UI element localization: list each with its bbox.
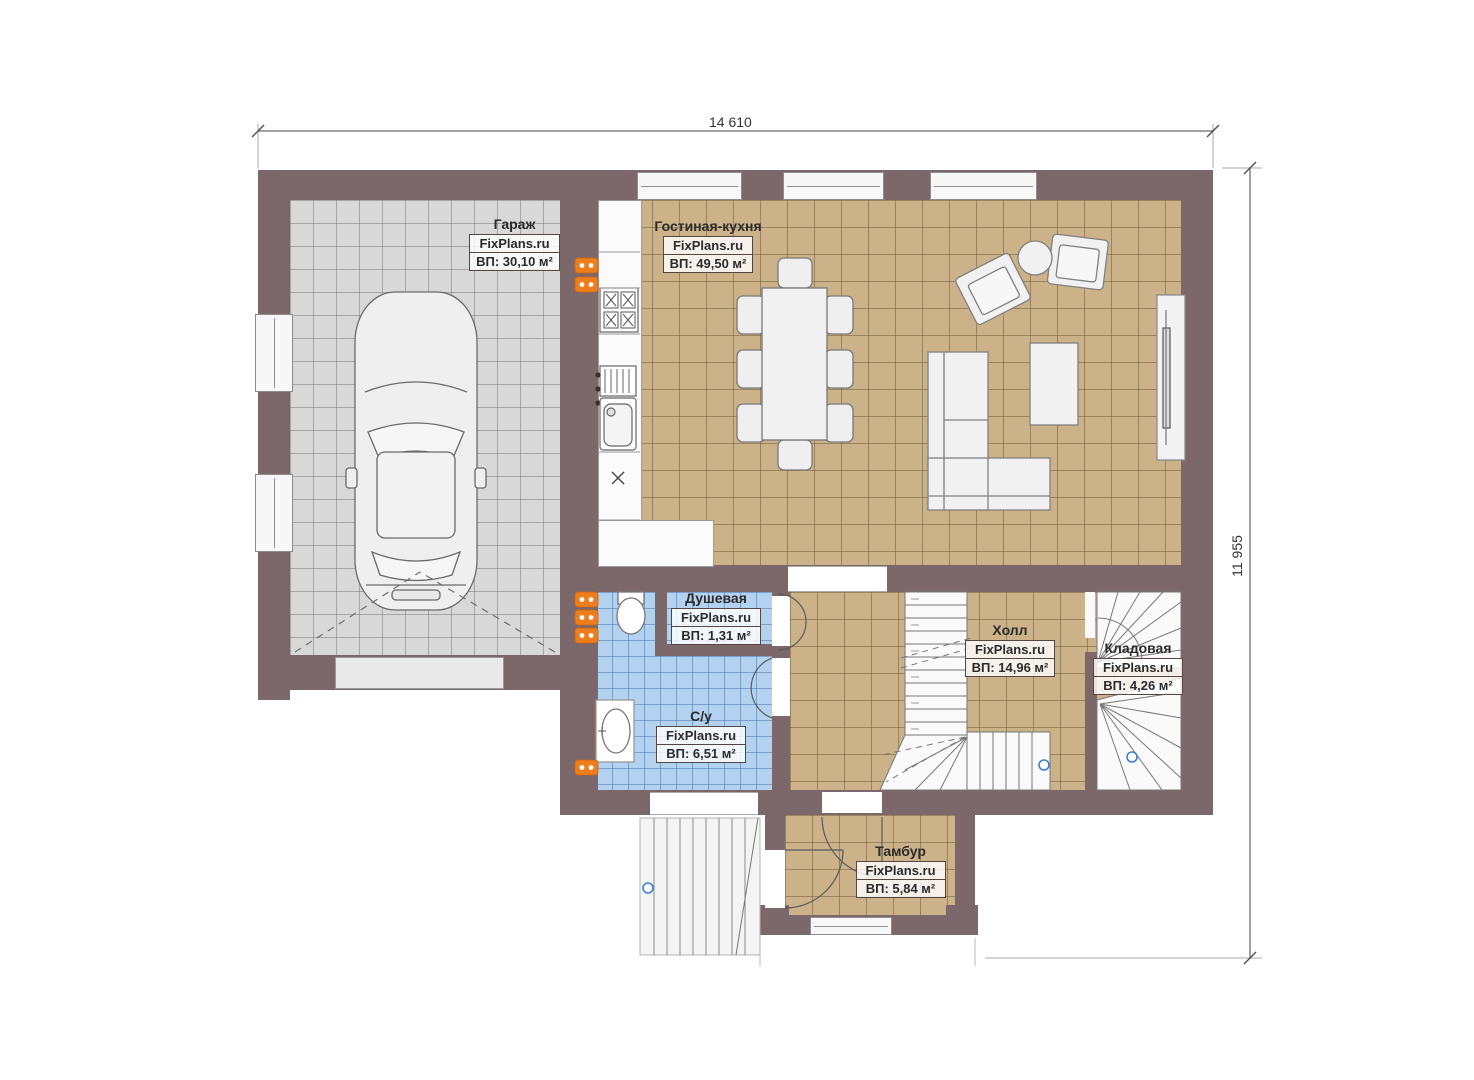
watermark: FixPlans.ru: [672, 609, 760, 627]
living-window-1: [637, 172, 742, 200]
room-area: ВП: 5,84 м²: [857, 880, 945, 897]
entrance-stairs: [640, 818, 760, 955]
vestibule-pilaster-left: [757, 905, 789, 935]
watermark: FixPlans.ru: [470, 235, 559, 253]
room-label-hall: Холл FixPlans.ru ВП: 14,96 м²: [950, 622, 1070, 677]
room-label-garage: Гараж FixPlans.ru ВП: 30,10 м²: [452, 216, 577, 271]
watermark: FixPlans.ru: [857, 862, 945, 880]
kitchen-counter-vertical: [598, 200, 642, 522]
right-wall: [1181, 170, 1213, 815]
room-name: С/у: [640, 708, 762, 724]
watermark: FixPlans.ru: [664, 237, 753, 255]
living-hall-wall: [598, 565, 1181, 592]
room-label-vestibule: Тамбур FixPlans.ru ВП: 5,84 м²: [843, 843, 958, 898]
entrance-door-opening: [650, 792, 758, 815]
room-area: ВП: 6,51 м²: [657, 745, 745, 762]
room-area: ВП: 4,26 м²: [1094, 677, 1182, 694]
garage-left-wall: [258, 170, 290, 700]
room-name: Кладовая: [1086, 640, 1190, 656]
room-name: Тамбур: [843, 843, 958, 859]
garage-window-1: [255, 314, 293, 392]
garage-top-wall: [258, 170, 598, 200]
room-info-box: FixPlans.ru ВП: 1,31 м²: [671, 608, 761, 645]
living-window-2: [783, 172, 884, 200]
room-label-living-kitchen: Гостиная-кухня FixPlans.ru ВП: 49,50 м²: [648, 218, 768, 273]
garage-living-wall: [560, 200, 598, 790]
room-label-wc: С/у FixPlans.ru ВП: 6,51 м²: [640, 708, 762, 763]
room-info-box: FixPlans.ru ВП: 6,51 м²: [656, 726, 746, 763]
room-name: Душевая: [665, 590, 767, 606]
room-name: Гараж: [452, 216, 577, 232]
vestibule-pilaster-right: [946, 905, 978, 935]
room-info-box: FixPlans.ru ВП: 14,96 м²: [965, 640, 1056, 677]
dimension-height: 11 955: [1229, 531, 1245, 581]
floor-plan: 14 610 11 955 Гараж FixPlans.ru ВП: 30,1…: [0, 0, 1474, 1080]
wc-door-opening: [772, 658, 790, 716]
room-info-box: FixPlans.ru ВП: 30,10 м²: [469, 234, 560, 271]
vestibule-top-opening: [822, 792, 882, 813]
room-area: ВП: 14,96 м²: [966, 659, 1055, 676]
watermark: FixPlans.ru: [657, 727, 745, 745]
room-info-box: FixPlans.ru ВП: 5,84 м²: [856, 861, 946, 898]
room-area: ВП: 49,50 м²: [664, 255, 753, 272]
kitchen-counter-corner: [598, 520, 714, 567]
room-area: ВП: 30,10 м²: [470, 253, 559, 270]
room-label-storage: Кладовая FixPlans.ru ВП: 4,26 м²: [1086, 640, 1190, 695]
garage-window-2: [255, 474, 293, 552]
room-label-shower: Душевая FixPlans.ru ВП: 1,31 м²: [665, 590, 767, 645]
room-area: ВП: 1,31 м²: [672, 627, 760, 644]
vestibule-side-door-opening: [765, 850, 785, 908]
dimension-width: 14 610: [705, 114, 756, 130]
vestibule-window: [810, 917, 892, 935]
room-info-box: FixPlans.ru ВП: 4,26 м²: [1093, 658, 1183, 695]
room-name: Холл: [950, 622, 1070, 638]
living-hall-opening: [788, 566, 887, 592]
shower-door-opening: [772, 596, 790, 646]
watermark: FixPlans.ru: [966, 641, 1055, 659]
room-info-box: FixPlans.ru ВП: 49,50 м²: [663, 236, 754, 273]
living-window-3: [930, 172, 1037, 200]
garage-door: [335, 657, 504, 689]
room-name: Гостиная-кухня: [648, 218, 768, 234]
watermark: FixPlans.ru: [1094, 659, 1182, 677]
shower-bottom-wall: [655, 644, 772, 656]
